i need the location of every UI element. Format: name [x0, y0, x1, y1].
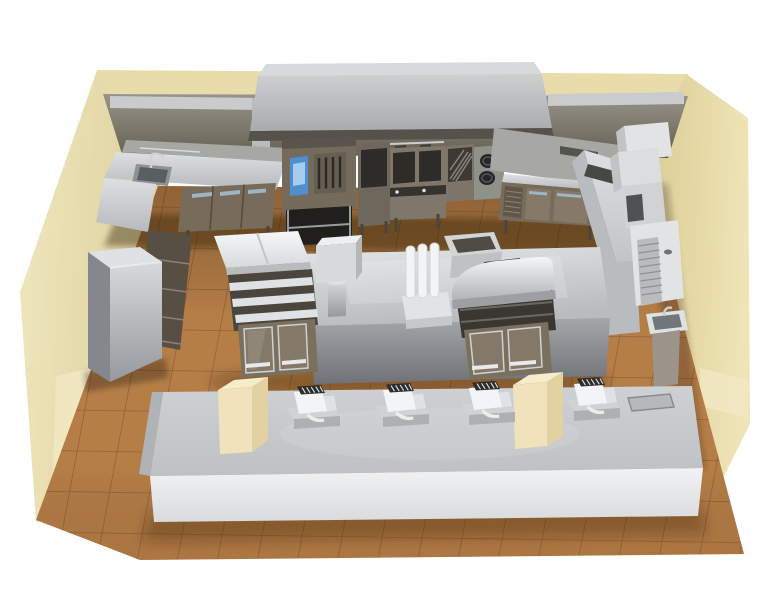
hand-sink-pedestal [652, 330, 680, 387]
fryer-screen [419, 150, 441, 182]
ice-machine-vent-hole [664, 250, 672, 255]
island-counter-front [310, 318, 610, 384]
wall-rail-left [110, 96, 264, 110]
hood-front-face [250, 74, 552, 131]
pump-dispenser [418, 244, 427, 298]
hood-top-face [258, 62, 542, 76]
pillar-front [513, 382, 547, 449]
pedestal-box-front [316, 243, 356, 283]
pump-dispenser [406, 246, 415, 298]
pillar-side [547, 372, 563, 446]
fryer-knob [395, 190, 399, 194]
glass-cabinet-left [238, 319, 318, 378]
pedestal-column [328, 281, 346, 317]
pillar-side [252, 377, 268, 452]
kitchen-render [0, 0, 780, 600]
fridge-left-face [88, 252, 110, 382]
charbroiler [446, 144, 474, 202]
fryer-knob [422, 189, 426, 193]
wall-rail-right [548, 92, 684, 106]
oven-screen-glow [293, 162, 305, 186]
service-counter-front [150, 468, 703, 522]
cream-pillar-1 [218, 377, 268, 454]
upright-fridge [88, 247, 162, 382]
holding-window [361, 148, 387, 188]
fryer-screen [393, 152, 415, 185]
pillar-front [218, 387, 252, 454]
cream-pillar-2 [513, 372, 563, 449]
glass-cabinet-right [464, 322, 552, 380]
wall-cabinet-2 [618, 148, 662, 188]
combi-oven [282, 137, 356, 246]
pump-dispenser [430, 243, 439, 297]
fryer-station [390, 142, 446, 232]
holding-cabinet [358, 142, 390, 236]
microwave-door [626, 194, 644, 222]
center-island [214, 231, 610, 384]
